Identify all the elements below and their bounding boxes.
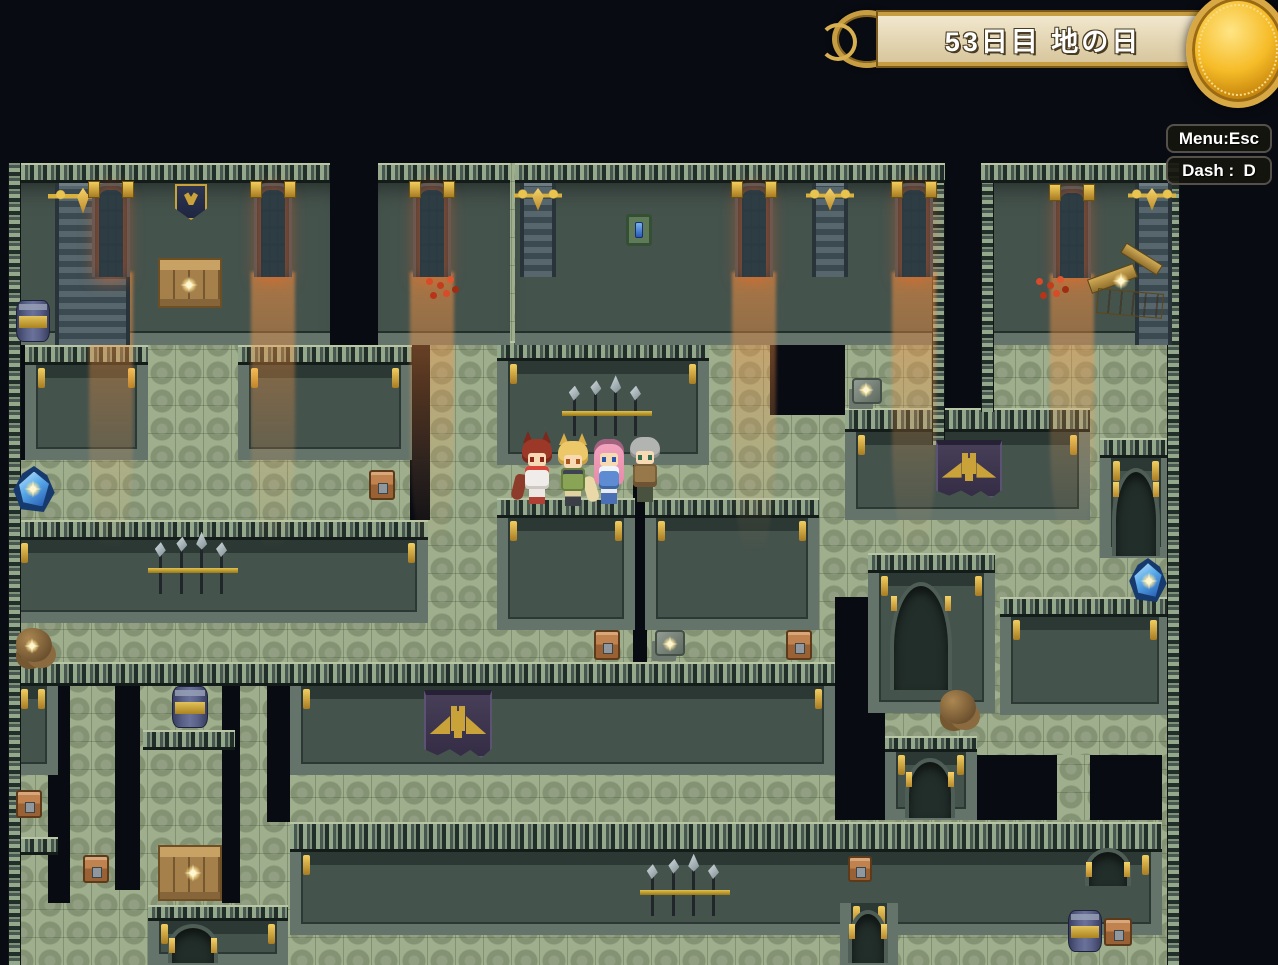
wall-band [148, 905, 288, 921]
sparkle-icon [858, 382, 874, 398]
treasure-chest[interactable] [16, 790, 42, 818]
wall-band [515, 163, 945, 183]
sparkle-icon [1140, 572, 1158, 590]
eagle-banner [424, 690, 492, 758]
barrel[interactable] [1068, 910, 1102, 952]
dash-shortcut-label: Dash : D [1182, 161, 1256, 181]
floor-corridor [1057, 755, 1090, 820]
map-edge [981, 183, 994, 412]
arched-doorway[interactable] [1085, 848, 1131, 886]
treasure-chest[interactable] [369, 470, 395, 500]
door-light-beam [892, 272, 936, 552]
wall-band [8, 520, 428, 540]
room [497, 518, 635, 630]
red-mushrooms[interactable] [426, 278, 433, 285]
sparkle-icon [1112, 272, 1130, 290]
arched-doorway[interactable] [168, 924, 218, 963]
eagle-banner [936, 440, 1002, 498]
void-gap [222, 672, 240, 903]
rock-pile[interactable] [940, 690, 976, 724]
treasure-chest[interactable] [1104, 918, 1132, 946]
door-light-beam [732, 272, 776, 552]
weapon-rack [640, 862, 730, 916]
wall-band [8, 163, 330, 183]
void-gap [770, 345, 845, 415]
party-member-red-wolf-girl[interactable] [520, 430, 554, 504]
wall-gem-switch[interactable] [626, 214, 652, 246]
void-gap [267, 662, 290, 822]
void-gap [868, 713, 885, 820]
gold-gem-icon [1186, 0, 1278, 108]
barrel[interactable] [16, 300, 50, 342]
wall-band [8, 662, 835, 686]
sparkle-icon [24, 638, 40, 654]
void-gap [945, 163, 981, 412]
sparkle-icon [24, 480, 42, 498]
glowing-door[interactable] [92, 183, 130, 277]
wall-band [885, 736, 977, 752]
menu-shortcut-label: Menu:Esc [1179, 129, 1259, 149]
broken-crates[interactable] [1088, 246, 1182, 328]
hall-wall [515, 183, 945, 345]
wall-band [645, 498, 819, 518]
barrel[interactable] [172, 686, 208, 728]
party-member-grey-hair-man[interactable] [628, 428, 662, 504]
room [1000, 617, 1170, 715]
wall-band [868, 553, 995, 573]
sparkle-icon [662, 636, 678, 652]
game-screen: 53日目 地の日 Menu:Esc Dash : D [0, 0, 1278, 965]
menu-shortcut-badge[interactable]: Menu:Esc [1166, 124, 1272, 153]
red-mushrooms[interactable] [1036, 278, 1043, 285]
treasure-chest[interactable] [848, 856, 872, 882]
party-member-blonde-cat-girl[interactable] [556, 432, 590, 504]
wall-band [378, 163, 510, 183]
wall-band [290, 822, 1162, 852]
gold-ornament-icon [806, 182, 854, 212]
glowing-door[interactable] [735, 183, 773, 277]
day-banner-text: 53日目 地の日 [945, 20, 1142, 59]
gold-ornament-icon [1128, 182, 1176, 212]
day-banner: 53日目 地の日 [878, 12, 1208, 66]
glowing-door[interactable] [413, 183, 451, 277]
room [645, 518, 819, 630]
void-gap [330, 163, 378, 345]
room [290, 686, 835, 775]
sparkle-icon [180, 276, 198, 294]
sparkle-icon [184, 864, 202, 882]
wall-band [1100, 438, 1172, 458]
gold-ornament-icon [514, 182, 562, 212]
glowing-door[interactable] [1053, 186, 1091, 278]
glowing-door[interactable] [254, 183, 292, 277]
void-gap [115, 662, 140, 890]
wall-band [143, 730, 235, 750]
wall-band [981, 163, 1180, 183]
treasure-chest[interactable] [594, 630, 620, 660]
door-light-beam [251, 272, 295, 552]
treasure-chest[interactable] [83, 855, 109, 883]
glowing-door[interactable] [895, 183, 933, 277]
weapon-rack [148, 540, 238, 594]
map-edge [8, 163, 21, 965]
treasure-chest[interactable] [786, 630, 812, 660]
party-member-pink-hair-girl[interactable] [592, 430, 626, 504]
arched-doorway[interactable] [1112, 468, 1160, 556]
dash-shortcut-badge[interactable]: Dash : D [1166, 156, 1272, 185]
door-light-beam [410, 272, 454, 552]
void-gap [835, 597, 868, 820]
